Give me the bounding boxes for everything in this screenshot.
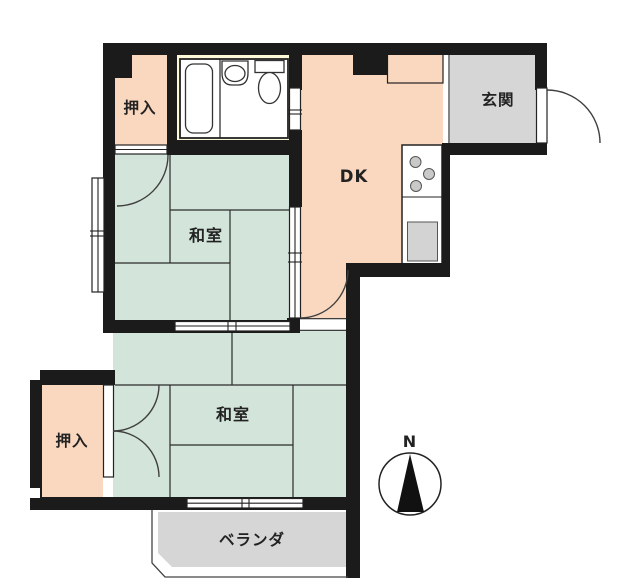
stove-burner-icon <box>410 157 421 168</box>
entrance-door-leaf <box>537 88 548 143</box>
door-arc-entrance <box>547 90 600 143</box>
wall-segment <box>289 43 302 90</box>
toilet-tank-icon <box>255 61 284 73</box>
wall-segment <box>346 263 360 578</box>
closet-top-label: 押入 <box>123 98 156 117</box>
wall-corner-notch <box>30 370 40 380</box>
wall-segment <box>289 130 302 207</box>
bathtub-icon <box>186 64 213 133</box>
kitchen-sink-icon <box>408 222 438 261</box>
wall-segment <box>167 140 302 155</box>
closet-bottom-door <box>104 385 114 477</box>
toilet-bowl-icon <box>259 73 281 104</box>
bathroom-unit <box>180 59 288 138</box>
washitsu-middle-label: 和室 <box>189 226 223 245</box>
closet-bottom-label: 押入 <box>55 431 88 450</box>
wall-segment <box>535 43 547 90</box>
entrance-label: 玄関 <box>481 90 514 109</box>
veranda-label: ベランダ <box>219 530 285 549</box>
wall-segment <box>30 370 115 385</box>
washitsu-bottom-label: 和室 <box>216 405 250 424</box>
wall-segment <box>348 263 450 277</box>
stove-burner-icon <box>411 181 422 192</box>
bathroom-door <box>290 88 301 130</box>
kitchen-unit <box>402 145 442 266</box>
sink-basin-icon <box>225 66 245 82</box>
floor-plan-drawing: N 押入 玄関 DK 和室 和室 押入 ベランダ <box>0 0 625 588</box>
wall-segment <box>353 43 388 75</box>
wall-corner-notch <box>30 488 40 498</box>
floor-plan-page: N 押入 玄関 DK 和室 和室 押入 ベランダ <box>0 0 625 588</box>
compass-north-label: N <box>403 432 417 451</box>
wall-segment <box>443 143 547 155</box>
dk-label: DK <box>340 167 369 186</box>
dk-opening <box>300 318 346 331</box>
entrance-cabinet <box>388 53 444 83</box>
wall-segment <box>103 43 115 333</box>
compass-icon: N <box>379 432 441 515</box>
wall-segment <box>167 43 177 145</box>
stove-burner-icon <box>424 169 435 180</box>
wall-segment <box>442 143 450 267</box>
